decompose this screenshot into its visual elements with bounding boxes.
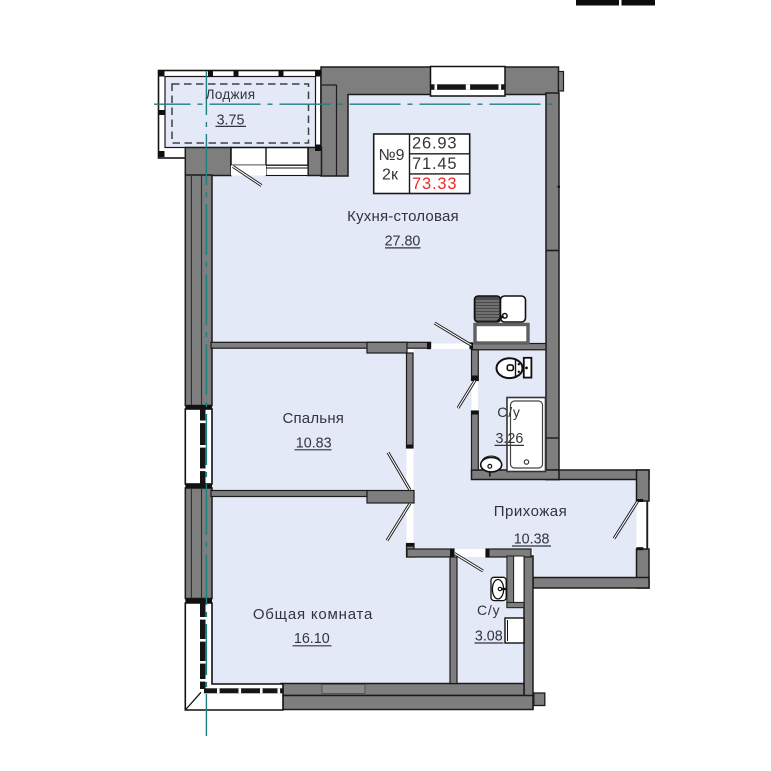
svg-text:Спальня: Спальня (282, 410, 344, 427)
svg-text:27.80: 27.80 (385, 233, 421, 249)
svg-text:С/у: С/у (477, 602, 500, 618)
svg-text:16.10: 16.10 (294, 631, 330, 647)
svg-text:№9: №9 (378, 147, 404, 164)
svg-text:3.26: 3.26 (495, 431, 523, 447)
svg-text:73.33: 73.33 (412, 175, 457, 193)
svg-text:71.45: 71.45 (412, 155, 457, 173)
svg-text:Кухня-столовая: Кухня-столовая (347, 208, 459, 225)
svg-text:2к: 2к (382, 167, 399, 184)
svg-text:3.08: 3.08 (475, 628, 503, 644)
svg-text:10.38: 10.38 (514, 531, 550, 547)
svg-text:С/у: С/у (497, 404, 520, 420)
svg-text:Общая комната: Общая комната (253, 606, 373, 623)
svg-text:10.83: 10.83 (296, 435, 332, 451)
svg-text:26.93: 26.93 (412, 135, 457, 153)
svg-text:Лоджия: Лоджия (206, 87, 256, 102)
svg-text:Прихожая: Прихожая (494, 503, 568, 520)
